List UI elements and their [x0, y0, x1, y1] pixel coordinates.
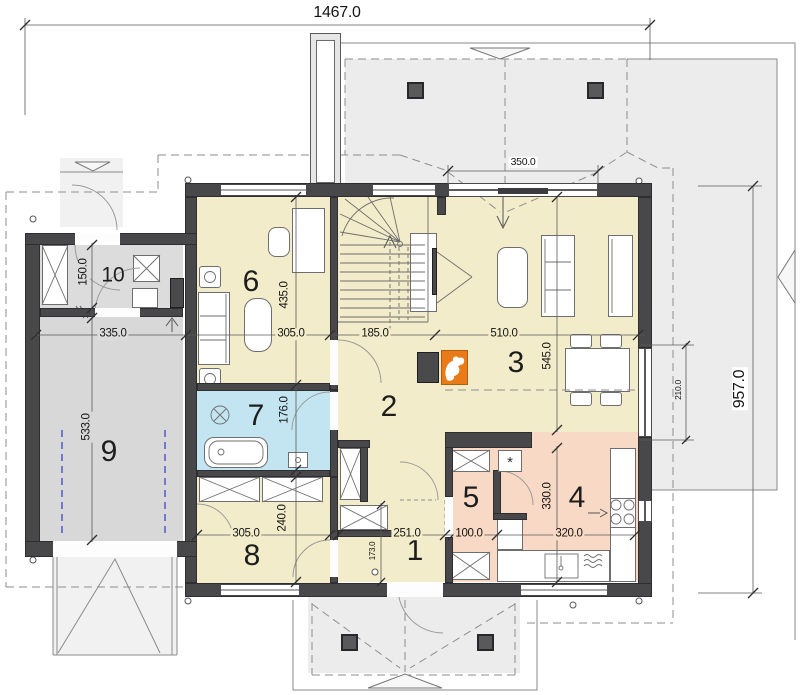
porch-column — [341, 634, 358, 651]
dimension-label: 305.0 — [230, 528, 261, 540]
room-number: 9 — [101, 437, 118, 467]
room-number: 2 — [381, 392, 398, 422]
dining-chair — [600, 392, 622, 406]
sofa — [541, 235, 575, 317]
chimney-flue — [316, 40, 335, 183]
room-number: 1 — [407, 536, 424, 566]
dimension-label: 545.0 — [542, 340, 554, 371]
dining-chair — [600, 334, 622, 348]
wall — [445, 432, 532, 448]
dimension-label: 335.0 — [97, 328, 128, 340]
wall — [197, 470, 330, 477]
room-number: 5 — [463, 483, 480, 513]
dining-table — [565, 348, 630, 392]
fireplace-stove — [417, 352, 439, 383]
kitchen-counter — [497, 550, 610, 582]
wardrobe — [199, 477, 260, 502]
washer — [288, 452, 308, 468]
room-number: 6 — [243, 267, 260, 297]
chaise — [608, 235, 633, 317]
dimension-label: 957.0 — [732, 368, 748, 411]
wall — [185, 197, 197, 583]
dimension-label: 185.0 — [359, 328, 390, 340]
door-opening — [75, 233, 120, 245]
closet — [340, 505, 388, 530]
fireplace-logo — [441, 350, 468, 385]
dimension-label: 176.0 — [279, 394, 291, 425]
window — [220, 584, 300, 596]
wall — [493, 513, 527, 520]
dimension-label: 240.0 — [277, 502, 289, 533]
armchair — [199, 266, 221, 288]
pantry-shelf — [452, 450, 490, 472]
wardrobe — [42, 245, 68, 305]
driveway — [53, 557, 177, 655]
room-number: 4 — [569, 483, 586, 513]
wall — [197, 383, 330, 391]
door-opening — [330, 340, 338, 385]
water-heater — [170, 278, 184, 308]
dimension-label: 173.0 — [369, 540, 377, 563]
coffee-table — [244, 298, 272, 352]
bathtub — [204, 437, 268, 468]
room-9-garage-floor — [40, 317, 183, 541]
boiler — [133, 255, 160, 282]
wall — [338, 530, 392, 537]
dining-chair — [570, 392, 592, 406]
window — [220, 184, 307, 196]
room-number: 3 — [508, 348, 525, 378]
dining-chair — [570, 334, 592, 348]
dimension-label: 350.0 — [509, 157, 538, 168]
dimension-label: 1467.0 — [311, 5, 362, 21]
fridge — [497, 517, 523, 550]
wall — [360, 447, 368, 502]
terrace-side — [652, 183, 777, 490]
stove — [610, 498, 636, 528]
boiler — [132, 288, 158, 308]
terrace — [345, 59, 777, 183]
dimension-label: 305.0 — [275, 328, 306, 340]
pantry-shelf — [450, 552, 490, 580]
closet — [340, 448, 361, 500]
wall — [445, 537, 453, 583]
dimension-label: 330.0 — [542, 480, 554, 511]
tv-screen — [432, 248, 437, 295]
porch-column — [477, 634, 494, 651]
porch-column — [587, 82, 604, 99]
sofa — [198, 292, 230, 365]
window — [520, 584, 608, 596]
dimension-label: 210.0 — [674, 378, 683, 402]
door-opening — [53, 541, 177, 557]
sliding-door-bar — [498, 188, 548, 194]
dimension-label: 100.0 — [453, 528, 484, 540]
door-opening — [95, 308, 140, 317]
room-number: 10 — [101, 265, 124, 286]
dimension-label: 150.0 — [78, 256, 90, 287]
dimension-label: 251.0 — [391, 528, 422, 540]
wall — [638, 197, 652, 348]
door-opening — [445, 497, 453, 537]
window — [638, 500, 652, 522]
dimension-label: 510.0 — [488, 328, 519, 340]
room-number: 7 — [248, 401, 265, 431]
dimension-label: 320.0 — [553, 528, 584, 540]
desk — [292, 208, 325, 273]
washer-symbol: * — [498, 450, 522, 472]
coffee-table — [497, 247, 528, 308]
door-opening — [330, 392, 338, 430]
wall — [25, 233, 40, 557]
side-canopy — [60, 158, 123, 227]
dimension-label: 435.0 — [279, 279, 291, 310]
porch-column — [407, 82, 424, 99]
door-opening — [387, 583, 443, 597]
wall — [437, 197, 446, 215]
wall — [493, 470, 501, 515]
desk-chair — [268, 227, 290, 257]
wardrobe — [262, 477, 323, 502]
window — [372, 184, 436, 196]
window — [638, 348, 652, 437]
floor-plan: * 123456789101467.0957.0350.0335.0150.05… — [0, 0, 800, 695]
dimension-label: 533.0 — [81, 411, 93, 442]
room-number: 8 — [244, 541, 261, 571]
door-opening — [330, 540, 338, 577]
